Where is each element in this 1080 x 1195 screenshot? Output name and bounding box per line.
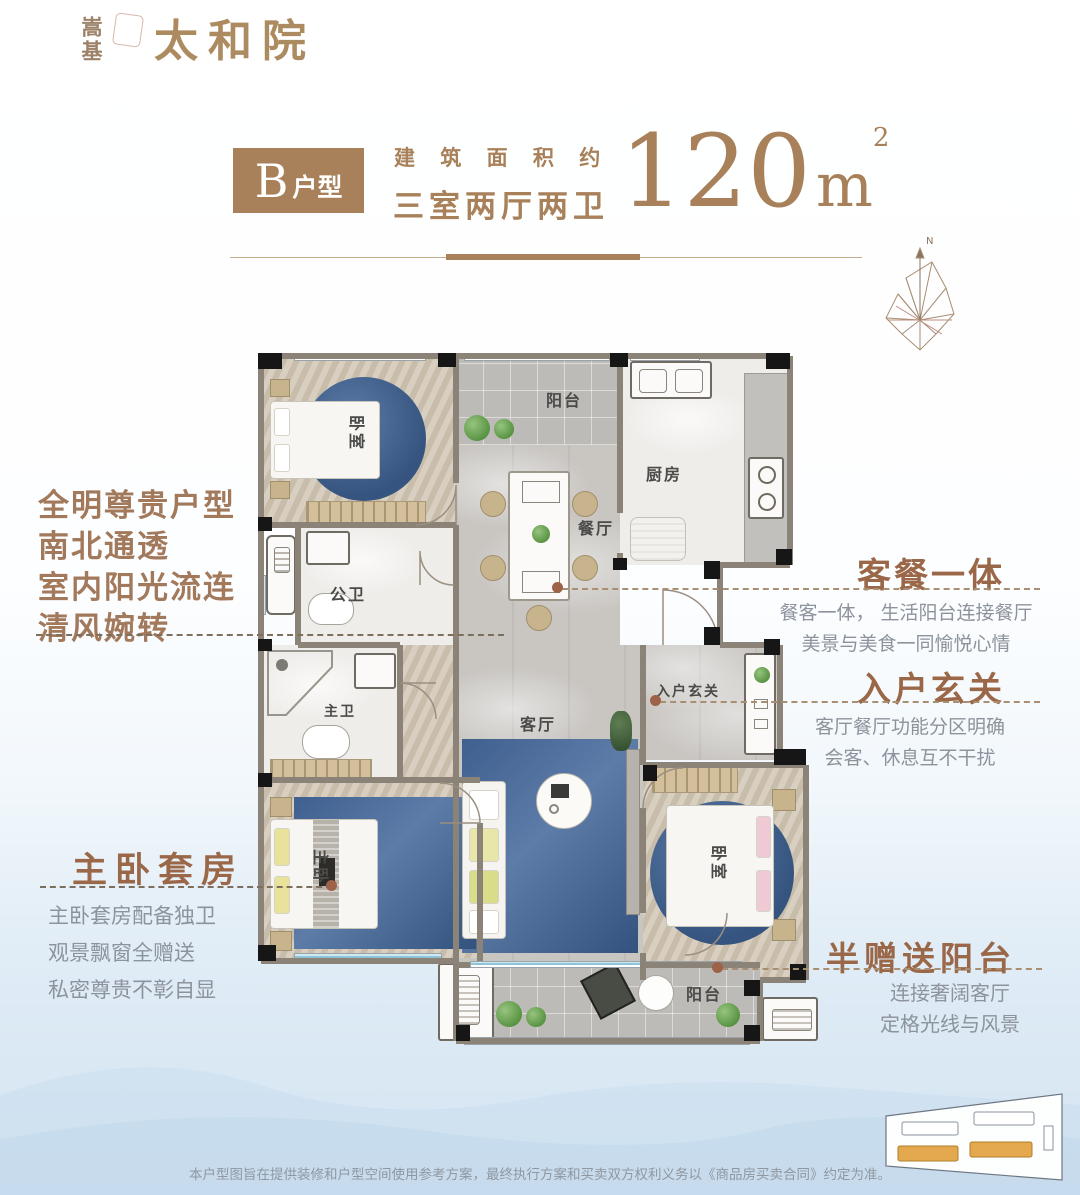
feature-entry-desc: 客厅餐厅功能分区明确 会客、休息互不干扰 (770, 712, 1050, 774)
feature-entry-title: 入户玄关 (822, 662, 1040, 711)
area-superscript: 2 (873, 123, 890, 153)
unit-type-suffix: 户型 (292, 168, 342, 204)
room-label-bedroom-bottom: 卧室 (708, 845, 732, 881)
room-label-dining: 餐厅 (578, 515, 614, 539)
feature-left-top: 全明尊贵户型 南北通透 室内阳光流连 清风婉转 (38, 486, 236, 650)
compass-rose-icon: N (862, 222, 982, 362)
feature-line: 室内阳光流连 (38, 568, 236, 609)
leader-dot (552, 582, 563, 593)
feature-dining-desc: 餐客一体， 生活阳台连接餐厅 美景与美食一同愉悦心情 (756, 598, 1056, 660)
logo-vertical-text: 嵩基 (76, 16, 106, 64)
room-label-balcony-top: 阳台 (546, 387, 582, 411)
leader-dot (712, 962, 723, 973)
feature-line: 南北通透 (38, 527, 236, 568)
leader-left-top (36, 634, 504, 636)
area-number: 120 (620, 113, 811, 230)
room-label-entry: 入户玄关 (656, 681, 720, 701)
leader-master (40, 886, 332, 888)
walls (258, 353, 814, 1047)
feature-master-desc: 主卧套房配备独卫 观景飘窗全赠送 私密尊贵不彰自显 (48, 898, 268, 1009)
disclaimer-text: 本户型图旨在提供装修和户型空间使用参考方案，最终执行方案和买卖双方权利义务以《商… (0, 1163, 1080, 1183)
area-prefix-label: 建 筑 面 积 约 (394, 142, 609, 172)
area-value: 120 m2 (620, 122, 889, 222)
room-layout-label: 三室两厅两卫 (393, 181, 609, 226)
room-label-bedroom-top: 卧室 (346, 415, 370, 451)
feature-line: 清风婉转 (38, 609, 236, 650)
title-divider-thick (446, 254, 640, 260)
floor-plan: 卧室 阳台 厨房 餐厅 公卫 主卫 客厅 入户玄关 主卧 卧室 阳台 (258, 353, 814, 1047)
feature-balcony-desc: 连接奢阔客厅 定格光线与风景 (840, 978, 1060, 1040)
room-label-bath-public: 公卫 (330, 581, 366, 605)
room-label-balcony-bottom: 阳台 (686, 981, 722, 1005)
leader-dot (650, 695, 661, 706)
project-name: 太和院 (154, 10, 316, 74)
poster-page: { "logo": { "vertical_name": "嵩基", "proj… (0, 0, 1080, 1195)
room-label-kitchen: 厨房 (646, 461, 682, 485)
leader-dot (326, 880, 337, 891)
leader-balcony (722, 968, 1042, 970)
room-label-living: 客厅 (520, 711, 556, 735)
feature-line: 全明尊贵户型 (38, 486, 236, 527)
logo-seal-icon (112, 12, 144, 48)
area-unit: m (816, 151, 873, 221)
logo: 嵩基 太和院 (76, 10, 316, 74)
unit-type-letter: B (255, 158, 289, 204)
compass-north-label: N (926, 236, 933, 247)
leader-dining (562, 588, 1040, 590)
feature-balcony-title: 半赠送阳台 (826, 932, 1016, 980)
leader-entry (660, 701, 1040, 703)
unit-type-badge: B 户型 (233, 148, 364, 213)
room-label-bath-master: 主卫 (324, 701, 356, 721)
